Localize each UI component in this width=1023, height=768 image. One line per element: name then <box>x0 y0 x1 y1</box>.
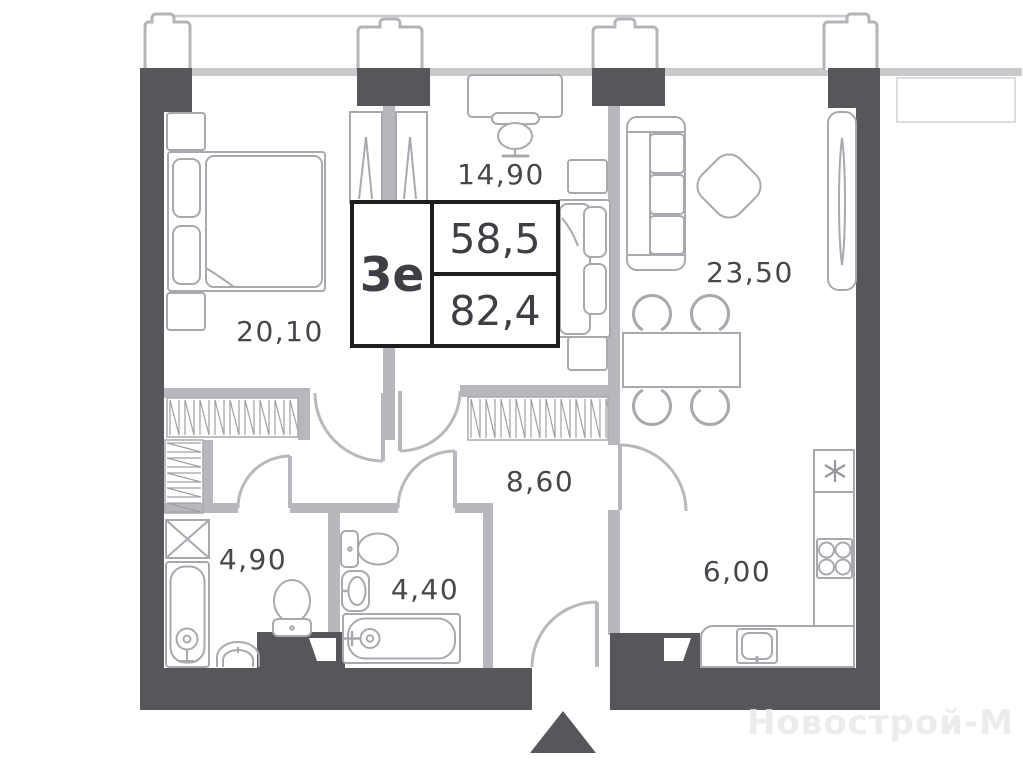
bedroom-door <box>315 393 383 461</box>
living-area-value: 58,5 <box>449 215 540 263</box>
bathtub-icon <box>343 614 460 663</box>
kitchen-sink-icon <box>737 629 777 663</box>
dining-table-icon <box>623 295 740 424</box>
toilet-icon <box>341 531 398 567</box>
nightstand-icon <box>568 337 607 370</box>
sink-icon <box>217 642 259 667</box>
closet-icon <box>396 112 427 203</box>
nightstand-icon <box>167 113 205 150</box>
desk-icon <box>468 75 562 117</box>
room-area-label-bedroom: 20,10 <box>236 315 324 348</box>
room-area-label-bath1: 4,90 <box>219 543 287 576</box>
chair-icon <box>692 295 729 330</box>
room-area-label-hall: 8,60 <box>506 465 574 498</box>
coffee-table-icon <box>691 148 767 224</box>
entrance-arrow-icon <box>530 711 596 753</box>
desk-chair-icon <box>492 113 539 156</box>
facade-outline <box>140 16 1022 122</box>
sink-icon <box>342 571 369 611</box>
double-bed-icon <box>168 152 325 291</box>
chair-icon <box>634 390 671 425</box>
total-area-value: 82,4 <box>449 287 540 335</box>
radiator-icon <box>828 112 856 290</box>
apartment-info-box: 3е 58,5 82,4 <box>352 202 558 346</box>
kitchen-door <box>620 445 686 511</box>
watermark: Новострой-М <box>747 703 1014 743</box>
room-area-label-office: 14,90 <box>457 158 545 191</box>
wardrobe-icon <box>468 397 608 440</box>
sofa-icon <box>627 117 685 270</box>
room-area-label-bath2: 4,40 <box>391 573 459 606</box>
closet-icon <box>350 112 382 203</box>
washing-machine-icon <box>166 520 209 558</box>
bathroom1-door <box>238 456 290 508</box>
wardrobe-icon <box>165 440 203 513</box>
floor-plan: 3е 58,5 82,4 20,10 14,90 23,50 8,60 4,90… <box>0 0 1023 768</box>
entrance-door <box>532 602 597 667</box>
room-area-label-living: 23,50 <box>706 256 794 289</box>
room-area-label-kitchen: 6,00 <box>703 555 771 588</box>
nightstand-icon <box>568 160 607 193</box>
bathroom2-door <box>398 451 455 508</box>
bathtub-icon <box>166 562 209 667</box>
exterior-columns <box>145 14 877 70</box>
office-door <box>400 391 460 451</box>
single-bed-icon <box>558 200 610 337</box>
hob-icon <box>817 539 852 578</box>
wardrobe-icon <box>167 398 298 437</box>
toilet-icon <box>273 580 311 636</box>
apartment-type-label: 3е <box>360 248 425 303</box>
chair-icon <box>692 390 729 425</box>
chair-icon <box>634 295 671 330</box>
bedroom-furniture <box>167 112 382 330</box>
nightstand-icon <box>167 293 205 330</box>
